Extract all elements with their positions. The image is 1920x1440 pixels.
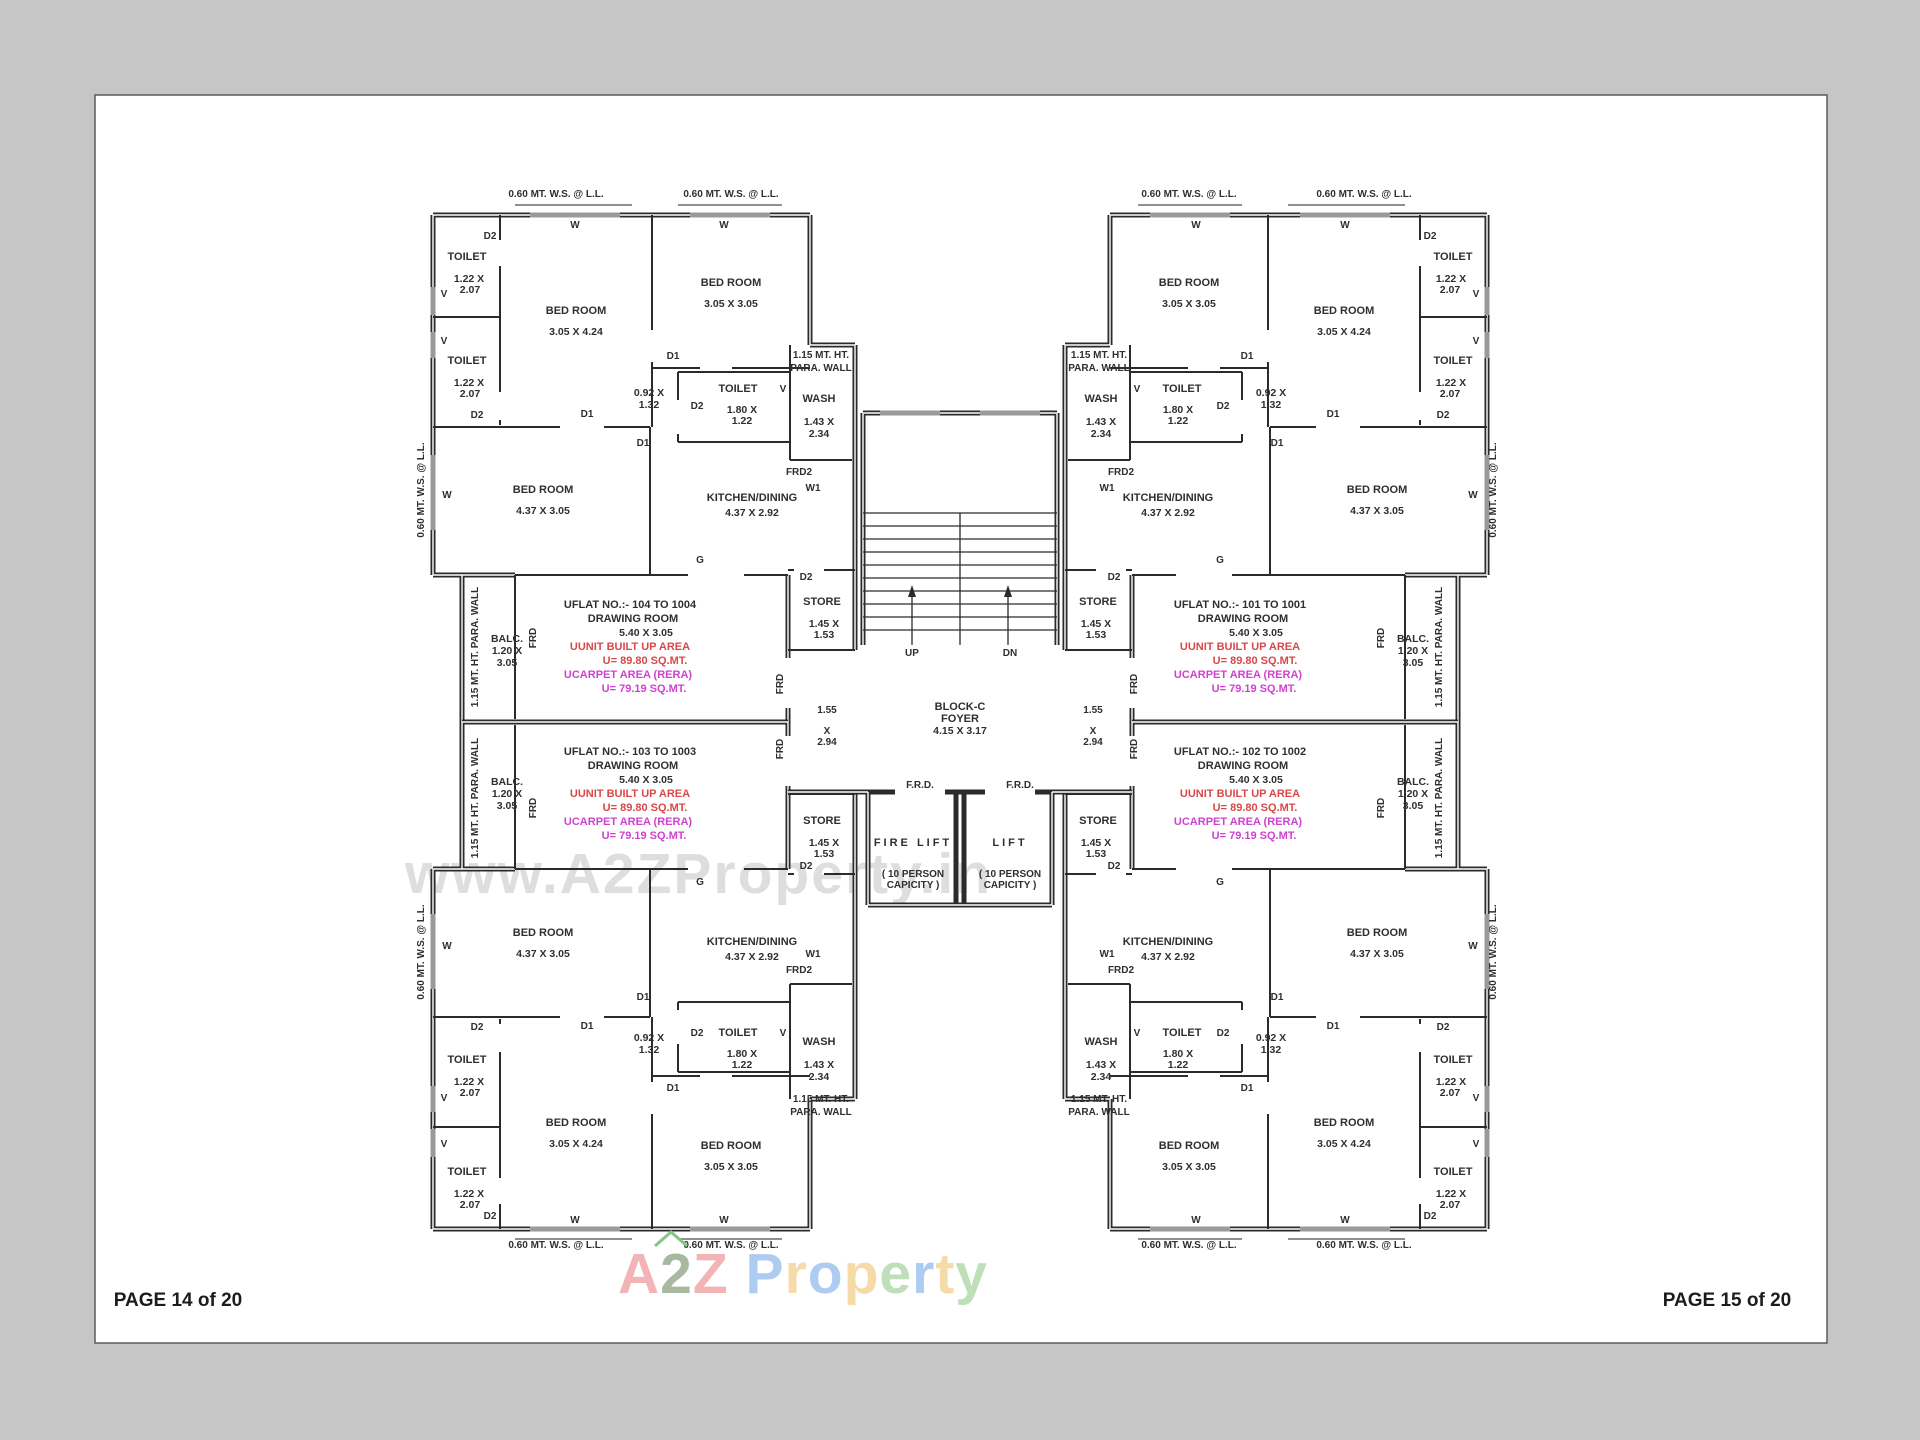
ws-vertical-label: 0.60 MT. W.S. @ L.L. xyxy=(416,904,427,1000)
door-label: D1 xyxy=(581,1021,594,1032)
room-label-bedroom: BED ROOM xyxy=(1314,1117,1375,1129)
door-label: D2 xyxy=(484,231,497,242)
lift-capacity: CAPICITY ) xyxy=(984,880,1037,891)
lift-capacity: ( 10 PERSON xyxy=(979,869,1041,880)
carpet-area-value: U= 79.19 SQ.MT. xyxy=(1212,683,1297,695)
room-label-balcony: BALC. xyxy=(491,776,523,788)
para-wall-label: PARA. WALL xyxy=(1068,1107,1129,1118)
lift-capacity: CAPICITY ) xyxy=(887,880,940,891)
room-label-toilet: TOILET xyxy=(1434,1166,1473,1178)
door-label: D2 xyxy=(1437,1022,1450,1033)
room-label-toilet: TOILET xyxy=(1434,1054,1473,1066)
room-dim: 3.05 X 4.24 xyxy=(1317,1138,1371,1150)
ws-vertical-label: 0.60 MT. W.S. @ L.L. xyxy=(416,442,427,538)
room-label-toilet: TOILET xyxy=(1434,251,1473,263)
door-label: D2 xyxy=(800,572,813,583)
door-label: FRD xyxy=(775,674,786,695)
room-dim: 1.43 X xyxy=(1086,416,1116,428)
window-label: W xyxy=(1468,490,1478,501)
foyer-dim: 4.15 X 3.17 xyxy=(933,725,987,737)
room-dim: 3.05 xyxy=(1403,657,1424,669)
room-label-balcony: BALC. xyxy=(491,633,523,645)
gas-point-label: G xyxy=(696,555,704,566)
room-dim: 4.37 X 3.05 xyxy=(1350,505,1404,517)
ws-label: 0.60 MT. W.S. @ L.L. xyxy=(508,189,604,200)
room-label-kitchen: KITCHEN/DINING xyxy=(1123,936,1213,948)
passage-dim: X xyxy=(824,726,831,737)
logo-letter: 2 xyxy=(660,1242,693,1306)
room-label-toilet: TOILET xyxy=(719,1027,758,1039)
door-label: FRD xyxy=(528,798,539,819)
window-label: W xyxy=(719,220,729,231)
room-dim: 2.07 xyxy=(460,284,481,296)
door-label: FRD xyxy=(1129,739,1140,760)
room-label-bedroom: BED ROOM xyxy=(1347,484,1408,496)
room-dim: 5.40 X 3.05 xyxy=(619,627,673,639)
built-up-area-label: UUNIT BUILT UP AREA xyxy=(1180,641,1300,653)
passage-dim: 2.94 xyxy=(817,737,837,748)
window-label: W xyxy=(1191,220,1201,231)
logo-letter: Z xyxy=(693,1242,729,1306)
vent-label: V xyxy=(441,289,448,300)
room-label-bedroom: BED ROOM xyxy=(1314,305,1375,317)
room-label-toilet: TOILET xyxy=(448,1054,487,1066)
room-label-wash: WASH xyxy=(803,393,836,405)
stair-dn-label: DN xyxy=(1003,648,1017,659)
window-label: W xyxy=(1468,941,1478,952)
window-label: W xyxy=(570,1215,580,1226)
gas-point-label: G xyxy=(1216,877,1224,888)
room-dim: 2.07 xyxy=(1440,388,1461,400)
room-label-wash: WASH xyxy=(1085,393,1118,405)
lobby-dim: 1.32 xyxy=(1261,1044,1282,1056)
flat-number: UFLAT NO.:- 102 TO 1002 xyxy=(1174,746,1306,758)
ws-vertical-label: 0.60 MT. W.S. @ L.L. xyxy=(1488,904,1499,1000)
room-label-toilet: TOILET xyxy=(448,251,487,263)
room-dim: 3.05 X 3.05 xyxy=(704,1161,758,1173)
passage-dim: 1.55 xyxy=(1083,705,1103,716)
room-label-bedroom: BED ROOM xyxy=(513,484,574,496)
room-label-drawing: DRAWING ROOM xyxy=(588,613,678,625)
window-label: W1 xyxy=(1100,949,1115,960)
room-dim: 4.37 X 3.05 xyxy=(516,505,570,517)
room-dim: 1.20 X xyxy=(1398,645,1428,657)
room-label-bedroom: BED ROOM xyxy=(1159,1140,1220,1152)
room-label-bedroom: BED ROOM xyxy=(546,1117,607,1129)
built-up-area-label: UUNIT BUILT UP AREA xyxy=(570,788,690,800)
lift-label: LIFT xyxy=(992,837,1027,849)
passage-dim: 2.94 xyxy=(1083,737,1103,748)
vent-label: V xyxy=(1134,384,1141,395)
window-label: W xyxy=(1340,1215,1350,1226)
room-dim: 4.37 X 3.05 xyxy=(516,948,570,960)
room-dim: 2.07 xyxy=(460,1087,481,1099)
room-dim: 1.43 X xyxy=(804,1059,834,1071)
built-up-area-value: U= 89.80 SQ.MT. xyxy=(603,802,688,814)
para-wall-label: PARA. WALL xyxy=(1068,363,1129,374)
vent-label: V xyxy=(1473,289,1480,300)
window-label: W1 xyxy=(1100,483,1115,494)
window-label: W xyxy=(442,941,452,952)
logo-letter: P xyxy=(746,1242,785,1306)
room-dim: 5.40 X 3.05 xyxy=(1229,774,1283,786)
ws-label: 0.60 MT. W.S. @ L.L. xyxy=(1141,189,1237,200)
logo-letter: A xyxy=(618,1242,660,1306)
room-dim: 4.37 X 2.92 xyxy=(725,951,779,963)
para-wall-label: 1.15 MT. HT. xyxy=(793,1094,849,1105)
room-dim: 2.07 xyxy=(1440,1087,1461,1099)
room-dim: 2.07 xyxy=(460,1199,481,1211)
room-dim: 2.07 xyxy=(1440,1199,1461,1211)
room-label-toilet: TOILET xyxy=(1434,355,1473,367)
lobby-dim: 0.92 X xyxy=(634,1032,664,1044)
room-label-balcony: BALC. xyxy=(1397,633,1429,645)
room-dim: 2.34 xyxy=(1091,428,1112,440)
room-label-kitchen: KITCHEN/DINING xyxy=(1123,492,1213,504)
door-label-frd: F.R.D. xyxy=(1006,780,1034,791)
room-dim: 3.05 X 4.24 xyxy=(549,326,603,338)
room-dim: 1.22 xyxy=(1168,415,1189,427)
para-wall-label: PARA. WALL xyxy=(790,1107,851,1118)
room-dim: 2.34 xyxy=(809,428,830,440)
logo-letter: y xyxy=(955,1242,988,1306)
lobby-dim: 1.32 xyxy=(639,399,660,411)
door-label: D2 xyxy=(1217,1028,1230,1039)
vent-label: V xyxy=(441,1139,448,1150)
room-label-toilet: TOILET xyxy=(448,1166,487,1178)
room-dim: 5.40 X 3.05 xyxy=(619,774,673,786)
window-label: W xyxy=(442,490,452,501)
door-label: D2 xyxy=(691,1028,704,1039)
vent-label: V xyxy=(441,1093,448,1104)
room-label-bedroom: BED ROOM xyxy=(1347,927,1408,939)
door-label: D2 xyxy=(1437,410,1450,421)
door-label-frd: F.R.D. xyxy=(906,780,934,791)
room-label-wash: WASH xyxy=(1085,1036,1118,1048)
room-dim: 4.37 X 2.92 xyxy=(1141,507,1195,519)
room-label-toilet: TOILET xyxy=(1163,1027,1202,1039)
window-label: W1 xyxy=(806,949,821,960)
room-dim: 3.05 X 3.05 xyxy=(1162,1161,1216,1173)
vent-label: V xyxy=(780,1028,787,1039)
door-label: D2 xyxy=(1217,401,1230,412)
room-dim: 1.20 X xyxy=(492,645,522,657)
carpet-area-label: UCARPET AREA (RERA) xyxy=(1174,816,1302,828)
logo-letter: r xyxy=(785,1242,808,1306)
room-dim: 3.05 xyxy=(1403,800,1424,812)
block-name: BLOCK-C xyxy=(935,701,986,713)
door-label: FRD2 xyxy=(1108,467,1135,478)
para-wall-vertical-label: 1.15 MT. HT. PARA. WALL xyxy=(470,587,481,707)
door-label: FRD2 xyxy=(786,467,813,478)
carpet-area-label: UCARPET AREA (RERA) xyxy=(564,669,692,681)
room-label-kitchen: KITCHEN/DINING xyxy=(707,492,797,504)
window-label: W xyxy=(1340,220,1350,231)
room-dim: 2.07 xyxy=(460,388,481,400)
room-dim: 2.34 xyxy=(809,1071,830,1083)
room-dim: 4.37 X 3.05 xyxy=(1350,948,1404,960)
vent-label: V xyxy=(1473,1139,1480,1150)
gas-point-label: G xyxy=(1216,555,1224,566)
para-wall-label: PARA. WALL xyxy=(790,363,851,374)
para-wall-vertical-label: 1.15 MT. HT. PARA. WALL xyxy=(470,738,481,858)
door-label: D1 xyxy=(1241,1083,1254,1094)
room-dim: 3.05 X 4.24 xyxy=(549,1138,603,1150)
vent-label: V xyxy=(1134,1028,1141,1039)
para-wall-label: 1.15 MT. HT. xyxy=(1071,350,1127,361)
room-label-bedroom: BED ROOM xyxy=(513,927,574,939)
logo-letter: p xyxy=(844,1242,880,1306)
window-label: W xyxy=(719,1215,729,1226)
room-dim: 1.22 xyxy=(1168,1059,1189,1071)
door-label: D2 xyxy=(691,401,704,412)
flat-number: UFLAT NO.:- 101 TO 1001 xyxy=(1174,599,1306,611)
room-dim: 3.05 xyxy=(497,657,518,669)
room-label-bedroom: BED ROOM xyxy=(1159,277,1220,289)
door-label: D1 xyxy=(1327,1021,1340,1032)
door-label: D1 xyxy=(1271,992,1284,1003)
passage-dim: X xyxy=(1090,726,1097,737)
page-background: www.A2ZProperty.in 0.60 MT. W.S. @ L.L. … xyxy=(0,0,1920,1440)
carpet-area-value: U= 79.19 SQ.MT. xyxy=(602,830,687,842)
room-dim: 1.53 xyxy=(1086,629,1107,641)
room-label-toilet: TOILET xyxy=(1163,383,1202,395)
foyer-label: FOYER xyxy=(941,713,979,725)
room-dim: 1.20 X xyxy=(1398,788,1428,800)
room-label-store: STORE xyxy=(803,815,841,827)
room-label-kitchen: KITCHEN/DINING xyxy=(707,936,797,948)
lobby-dim: 0.92 X xyxy=(1256,387,1286,399)
room-label-balcony: BALC. xyxy=(1397,776,1429,788)
para-wall-label: 1.15 MT. HT. xyxy=(793,350,849,361)
room-label-store: STORE xyxy=(1079,596,1117,608)
door-label: D1 xyxy=(667,351,680,362)
vent-label: V xyxy=(441,336,448,347)
vent-label: V xyxy=(1473,1093,1480,1104)
window-label: W xyxy=(1191,1215,1201,1226)
room-label-bedroom: BED ROOM xyxy=(701,1140,762,1152)
built-up-area-value: U= 89.80 SQ.MT. xyxy=(603,655,688,667)
door-label: FRD xyxy=(1376,798,1387,819)
floor-plan-sheet: www.A2ZProperty.in 0.60 MT. W.S. @ L.L. … xyxy=(0,0,1920,1440)
room-dim: 1.53 xyxy=(814,848,835,860)
door-label: D1 xyxy=(1271,438,1284,449)
room-dim: 3.05 X 4.24 xyxy=(1317,326,1371,338)
logo-text: A2Z Property xyxy=(618,1242,988,1306)
door-label: FRD xyxy=(775,739,786,760)
door-label: FRD xyxy=(1129,674,1140,695)
room-label-store: STORE xyxy=(1079,815,1117,827)
ws-label: 0.60 MT. W.S. @ L.L. xyxy=(1316,189,1412,200)
gas-point-label: G xyxy=(696,877,704,888)
room-label-drawing: DRAWING ROOM xyxy=(588,760,678,772)
para-wall-vertical-label: 1.15 MT. HT. PARA. WALL xyxy=(1434,738,1445,858)
logo-letter: t xyxy=(935,1242,955,1306)
room-dim: 1.22 xyxy=(732,1059,753,1071)
room-label-wash: WASH xyxy=(803,1036,836,1048)
carpet-area-value: U= 79.19 SQ.MT. xyxy=(1212,830,1297,842)
window-label: W xyxy=(570,220,580,231)
door-label: D2 xyxy=(1108,572,1121,583)
door-label: FRD xyxy=(1376,628,1387,649)
carpet-area-label: UCARPET AREA (RERA) xyxy=(1174,669,1302,681)
carpet-area-value: U= 79.19 SQ.MT. xyxy=(602,683,687,695)
room-dim: 1.53 xyxy=(814,629,835,641)
a2z-property-logo: A2Z Property xyxy=(618,1232,988,1306)
door-label: D2 xyxy=(1108,861,1121,872)
door-label: D2 xyxy=(800,861,813,872)
room-label-drawing: DRAWING ROOM xyxy=(1198,760,1288,772)
window-label: W1 xyxy=(806,483,821,494)
door-label: D2 xyxy=(471,1022,484,1033)
door-label: FRD xyxy=(528,628,539,649)
room-dim: 1.53 xyxy=(1086,848,1107,860)
room-dim: 1.22 xyxy=(732,415,753,427)
logo-letter: o xyxy=(808,1242,844,1306)
room-dim: 4.37 X 2.92 xyxy=(1141,951,1195,963)
logo-letter: r xyxy=(912,1242,935,1306)
flat-number: UFLAT NO.:- 104 TO 1004 xyxy=(564,599,697,611)
fire-lift-label: FIRE LIFT xyxy=(874,837,952,849)
room-dim: 3.05 X 3.05 xyxy=(1162,298,1216,310)
door-label: D1 xyxy=(1241,351,1254,362)
door-label: D2 xyxy=(471,410,484,421)
para-wall-label: 1.15 MT. HT. xyxy=(1071,1094,1127,1105)
passage-dim: 1.55 xyxy=(817,705,837,716)
lobby-dim: 1.32 xyxy=(639,1044,660,1056)
lift-capacity: ( 10 PERSON xyxy=(882,869,944,880)
room-dim: 3.05 xyxy=(497,800,518,812)
room-label-bedroom: BED ROOM xyxy=(546,305,607,317)
built-up-area-value: U= 89.80 SQ.MT. xyxy=(1213,655,1298,667)
room-label-toilet: TOILET xyxy=(719,383,758,395)
lobby-dim: 1.32 xyxy=(1261,399,1282,411)
room-dim: 1.20 X xyxy=(492,788,522,800)
door-label: D2 xyxy=(1424,231,1437,242)
room-label-bedroom: BED ROOM xyxy=(701,277,762,289)
page-number-right: PAGE 15 of 20 xyxy=(1663,1290,1791,1311)
built-up-area-value: U= 89.80 SQ.MT. xyxy=(1213,802,1298,814)
vent-label: V xyxy=(1473,336,1480,347)
ws-label: 0.60 MT. W.S. @ L.L. xyxy=(508,1240,604,1251)
door-label: D1 xyxy=(581,409,594,420)
door-label: D1 xyxy=(637,992,650,1003)
door-label: FRD2 xyxy=(1108,965,1135,976)
room-dim: 5.40 X 3.05 xyxy=(1229,627,1283,639)
room-label-store: STORE xyxy=(803,596,841,608)
ws-vertical-label: 0.60 MT. W.S. @ L.L. xyxy=(1488,442,1499,538)
logo-letter: e xyxy=(879,1242,912,1306)
door-label: D2 xyxy=(484,1211,497,1222)
stair-up-label: UP xyxy=(905,648,919,659)
lobby-dim: 0.92 X xyxy=(634,387,664,399)
flat-number: UFLAT NO.:- 103 TO 1003 xyxy=(564,746,696,758)
room-dim: 2.34 xyxy=(1091,1071,1112,1083)
room-dim: 1.43 X xyxy=(804,416,834,428)
door-label: D2 xyxy=(1424,1211,1437,1222)
door-label: FRD2 xyxy=(786,965,813,976)
room-dim: 3.05 X 3.05 xyxy=(704,298,758,310)
ws-label: 0.60 MT. W.S. @ L.L. xyxy=(1141,1240,1237,1251)
room-dim: 4.37 X 2.92 xyxy=(725,507,779,519)
ws-label: 0.60 MT. W.S. @ L.L. xyxy=(1316,1240,1412,1251)
para-wall-vertical-label: 1.15 MT. HT. PARA. WALL xyxy=(1434,587,1445,707)
door-label: D1 xyxy=(637,438,650,449)
page-number-left: PAGE 14 of 20 xyxy=(114,1290,242,1311)
carpet-area-label: UCARPET AREA (RERA) xyxy=(564,816,692,828)
room-dim: 1.43 X xyxy=(1086,1059,1116,1071)
built-up-area-label: UUNIT BUILT UP AREA xyxy=(1180,788,1300,800)
lobby-dim: 0.92 X xyxy=(1256,1032,1286,1044)
room-dim: 2.07 xyxy=(1440,284,1461,296)
built-up-area-label: UUNIT BUILT UP AREA xyxy=(570,641,690,653)
room-label-toilet: TOILET xyxy=(448,355,487,367)
door-label: D1 xyxy=(1327,409,1340,420)
door-label: D1 xyxy=(667,1083,680,1094)
room-label-drawing: DRAWING ROOM xyxy=(1198,613,1288,625)
ws-label: 0.60 MT. W.S. @ L.L. xyxy=(683,189,779,200)
vent-label: V xyxy=(780,384,787,395)
